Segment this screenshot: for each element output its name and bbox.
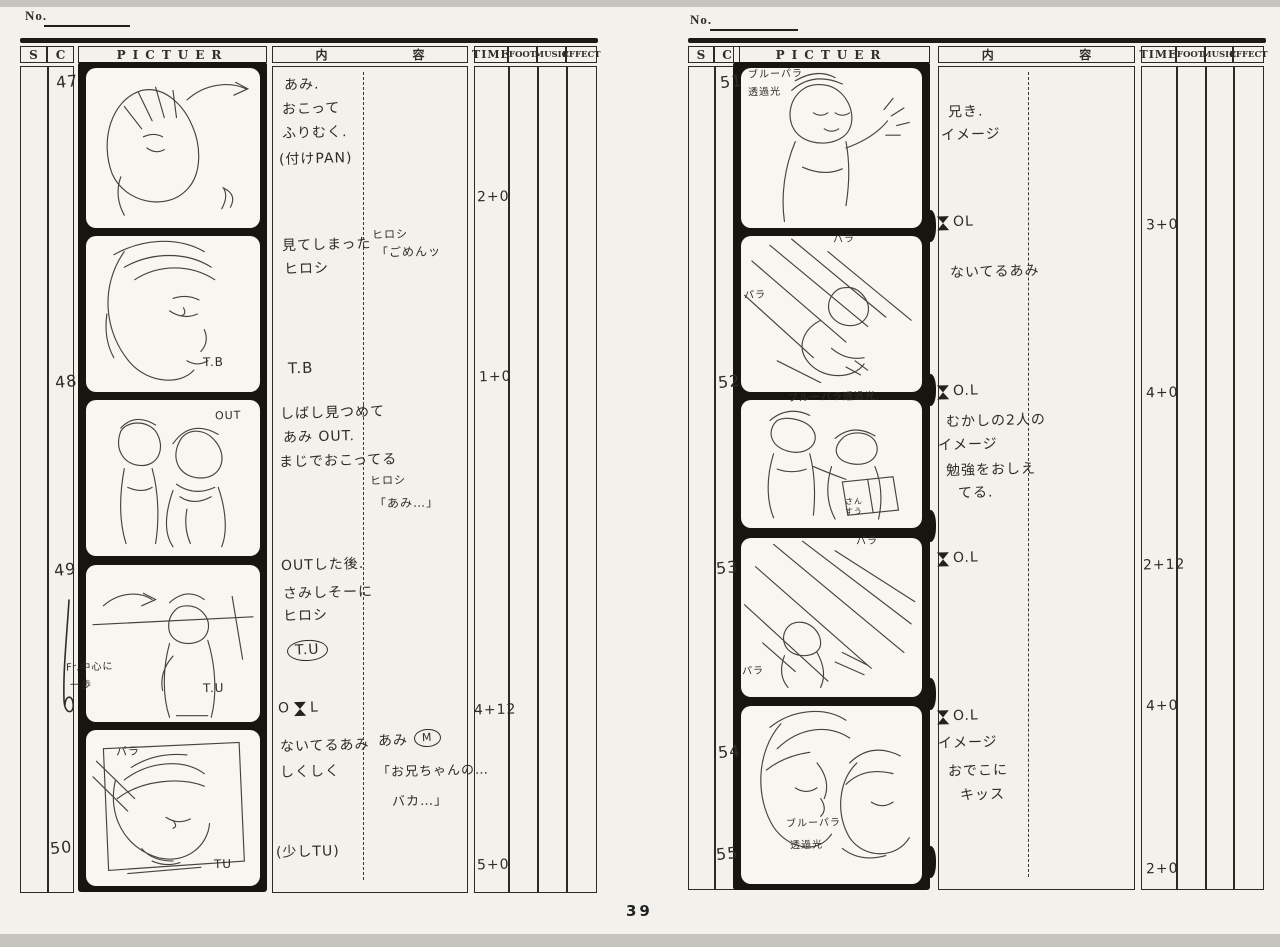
handwritten-note: ないてるあみ — [280, 738, 370, 756]
ol-text: OL — [953, 215, 974, 231]
header-cell-s: S — [688, 46, 714, 63]
handwritten-note: イメージ — [938, 735, 998, 752]
ol-text: O — [278, 702, 290, 718]
cut-time: 2+0 — [477, 190, 510, 206]
storyboard-frame-cut-52 — [741, 236, 922, 392]
handwritten-note: T.B — [288, 360, 314, 377]
handwritten-note: まじでおこってる — [279, 452, 398, 470]
cut-number: 54 — [717, 741, 741, 762]
figure-behind-sketch — [86, 565, 260, 722]
storyboard-frame-cut-cont — [86, 565, 260, 722]
ol-text: L — [310, 701, 319, 717]
cut-number: 50 — [49, 837, 73, 858]
frame-annotation: パラ — [856, 536, 878, 548]
storyboard-frame-cut-54 — [741, 538, 922, 697]
header-content-right-char: 容 — [1079, 46, 1091, 63]
hourglass-icon — [293, 701, 307, 717]
ol-transition-mark: O.L — [936, 550, 979, 567]
handwritten-note: 勉強をおしえ — [946, 462, 1036, 480]
cut-number: 52 — [717, 371, 741, 392]
cut-time: 4+0 — [1146, 699, 1179, 715]
frame-annotation: 透過光 — [790, 840, 823, 852]
frame-annotation: パラ — [833, 234, 855, 246]
ol-text: O.L — [953, 384, 979, 400]
cut-time: 5+0 — [477, 858, 510, 874]
cut-number: 48 — [54, 371, 78, 392]
frame-annotation: Fr.中心に — [66, 661, 114, 673]
hourglass-icon — [936, 709, 950, 725]
cut-time: 2+12 — [1143, 557, 1186, 573]
header-cell-foot: FOOT — [1176, 46, 1205, 63]
no-underline — [710, 29, 798, 31]
handwritten-note: (少しTU) — [276, 844, 340, 861]
film-sprocket — [924, 374, 936, 406]
handwritten-note: あみ — [378, 734, 408, 750]
handwritten-note: てる. — [958, 486, 994, 502]
diagonal-rays-figure-sketch — [741, 538, 922, 697]
sc-column-line — [714, 66, 716, 890]
frame-annotation: TU — [214, 858, 232, 872]
handwritten-note: 兄き. — [948, 105, 984, 121]
hourglass-icon — [936, 384, 950, 400]
handwritten-note: ふりむく. — [282, 125, 348, 142]
cut-time: 1+0 — [479, 370, 512, 386]
handwritten-note: ヒロシ — [372, 229, 408, 242]
header-cell-picture: PICTUER — [733, 46, 930, 63]
ol-transition-mark: OL — [936, 215, 974, 232]
handwritten-note: イメージ — [941, 127, 1001, 144]
frame-annotation: パラ — [744, 290, 766, 302]
film-sprocket — [924, 510, 936, 542]
frame-annotation: さん — [845, 498, 863, 507]
frame-annotation: T.U — [203, 682, 225, 696]
ol-transition-mark: O.L — [936, 708, 979, 725]
handwritten-note: 「ごめんッ — [376, 245, 441, 260]
film-sprocket — [924, 210, 936, 242]
frame-annotation: T.B — [203, 356, 224, 370]
handwritten-note: しばし見つめて — [280, 405, 385, 423]
header-cell-time: TIME — [1141, 46, 1176, 63]
girl-glancing-back-sketch — [86, 68, 260, 228]
ol-text: O.L — [953, 709, 979, 725]
storyboard-frame-cut-50 — [86, 730, 260, 886]
handwritten-note: 見てしまった — [282, 237, 372, 255]
header-cell-content: 内 容 — [938, 46, 1135, 63]
handwritten-note: ヒロシ — [283, 608, 328, 625]
handwritten-note: キッス — [960, 787, 1005, 804]
handwritten-note: (付けPAN) — [279, 151, 353, 168]
frame-annotation: OUT — [215, 410, 242, 423]
handwritten-note: おこって — [282, 101, 341, 118]
film-sprocket — [924, 678, 936, 710]
frame-annotation: パラ — [116, 746, 140, 759]
face-closeup-sketch — [86, 236, 260, 392]
frame-annotation: パラ — [742, 666, 764, 678]
storyboard-frame-cut-53 — [741, 400, 922, 528]
frame-annotation: ブルーパラ — [786, 817, 841, 829]
cut-time: 4+12 — [474, 702, 517, 718]
handwritten-note: ヒロシ — [370, 475, 406, 488]
ol-transition-mark: O.L — [936, 383, 979, 400]
storyboard-frame-cut-49 — [86, 400, 260, 556]
handwritten-note: ないてるあみ — [950, 264, 1040, 282]
two-faces-kiss-sketch — [741, 706, 922, 884]
handwritten-note: 「あみ…」 — [374, 496, 439, 511]
header-divider-bar — [688, 38, 1266, 43]
handwritten-note: あみ OUT. — [283, 429, 355, 446]
two-figures-sketch — [86, 400, 260, 556]
column-line-music — [1205, 66, 1207, 890]
time-columns — [1141, 66, 1264, 890]
header-cell-effect: EFFECT — [1233, 46, 1264, 63]
column-line-foot — [1176, 66, 1178, 890]
column-line-effect — [1233, 66, 1235, 890]
film-sprocket — [924, 846, 936, 878]
cut-time: 4+0 — [1146, 386, 1179, 402]
storyboard-frame-cut-47 — [86, 68, 260, 228]
storyboard-spread-page: No. S C PICTUER 内 容 TIME FOOT MUSIC EFFE… — [0, 0, 1280, 947]
handwritten-note: バカ…」 — [392, 794, 448, 810]
handwritten-note: OUTした後. — [281, 557, 365, 575]
cut-number: 55 — [715, 843, 739, 864]
page-number: 39 — [626, 902, 653, 920]
handwritten-note: さみしそーに — [283, 585, 373, 603]
cut-time: 2+0 — [1146, 862, 1179, 878]
cut-number: 49 — [53, 559, 77, 580]
hourglass-icon — [936, 215, 950, 231]
cut-number: 51 — [719, 71, 743, 92]
cut-number: 53 — [715, 557, 739, 578]
ol-text: O.L — [953, 551, 979, 567]
frame-annotation: 透過光 — [748, 87, 781, 99]
no-label: No. — [690, 12, 712, 28]
frame-annotation: すう — [845, 508, 863, 517]
two-kids-book-sketch — [741, 400, 922, 528]
handwritten-note: 「お兄ちゃんの… — [377, 764, 489, 781]
frame-annotation: 一歩 — [70, 680, 92, 692]
handwritten-note: おでこに — [948, 763, 1008, 780]
lying-figure-rays-sketch — [741, 236, 922, 392]
storyboard-frame-cut-48 — [86, 236, 260, 392]
ol-transition-mark: OL — [278, 700, 319, 717]
storyboard-frame-cut-55 — [741, 706, 922, 884]
handwritten-note: むかしの2人の — [946, 413, 1046, 431]
handwritten-note: イメージ — [938, 437, 998, 454]
handwritten-note: しくしく — [280, 764, 340, 781]
tv-face-sketch — [86, 730, 260, 886]
handwritten-note: ヒロシ — [284, 261, 329, 278]
cut-time: 3+0 — [1146, 218, 1179, 234]
frame-annotation: ブルーパラ — [748, 68, 803, 80]
handwritten-note: あみ. — [284, 78, 320, 94]
hourglass-icon — [936, 551, 950, 567]
header-content-left-char: 内 — [982, 46, 994, 63]
cut-number: 47 — [55, 71, 79, 92]
